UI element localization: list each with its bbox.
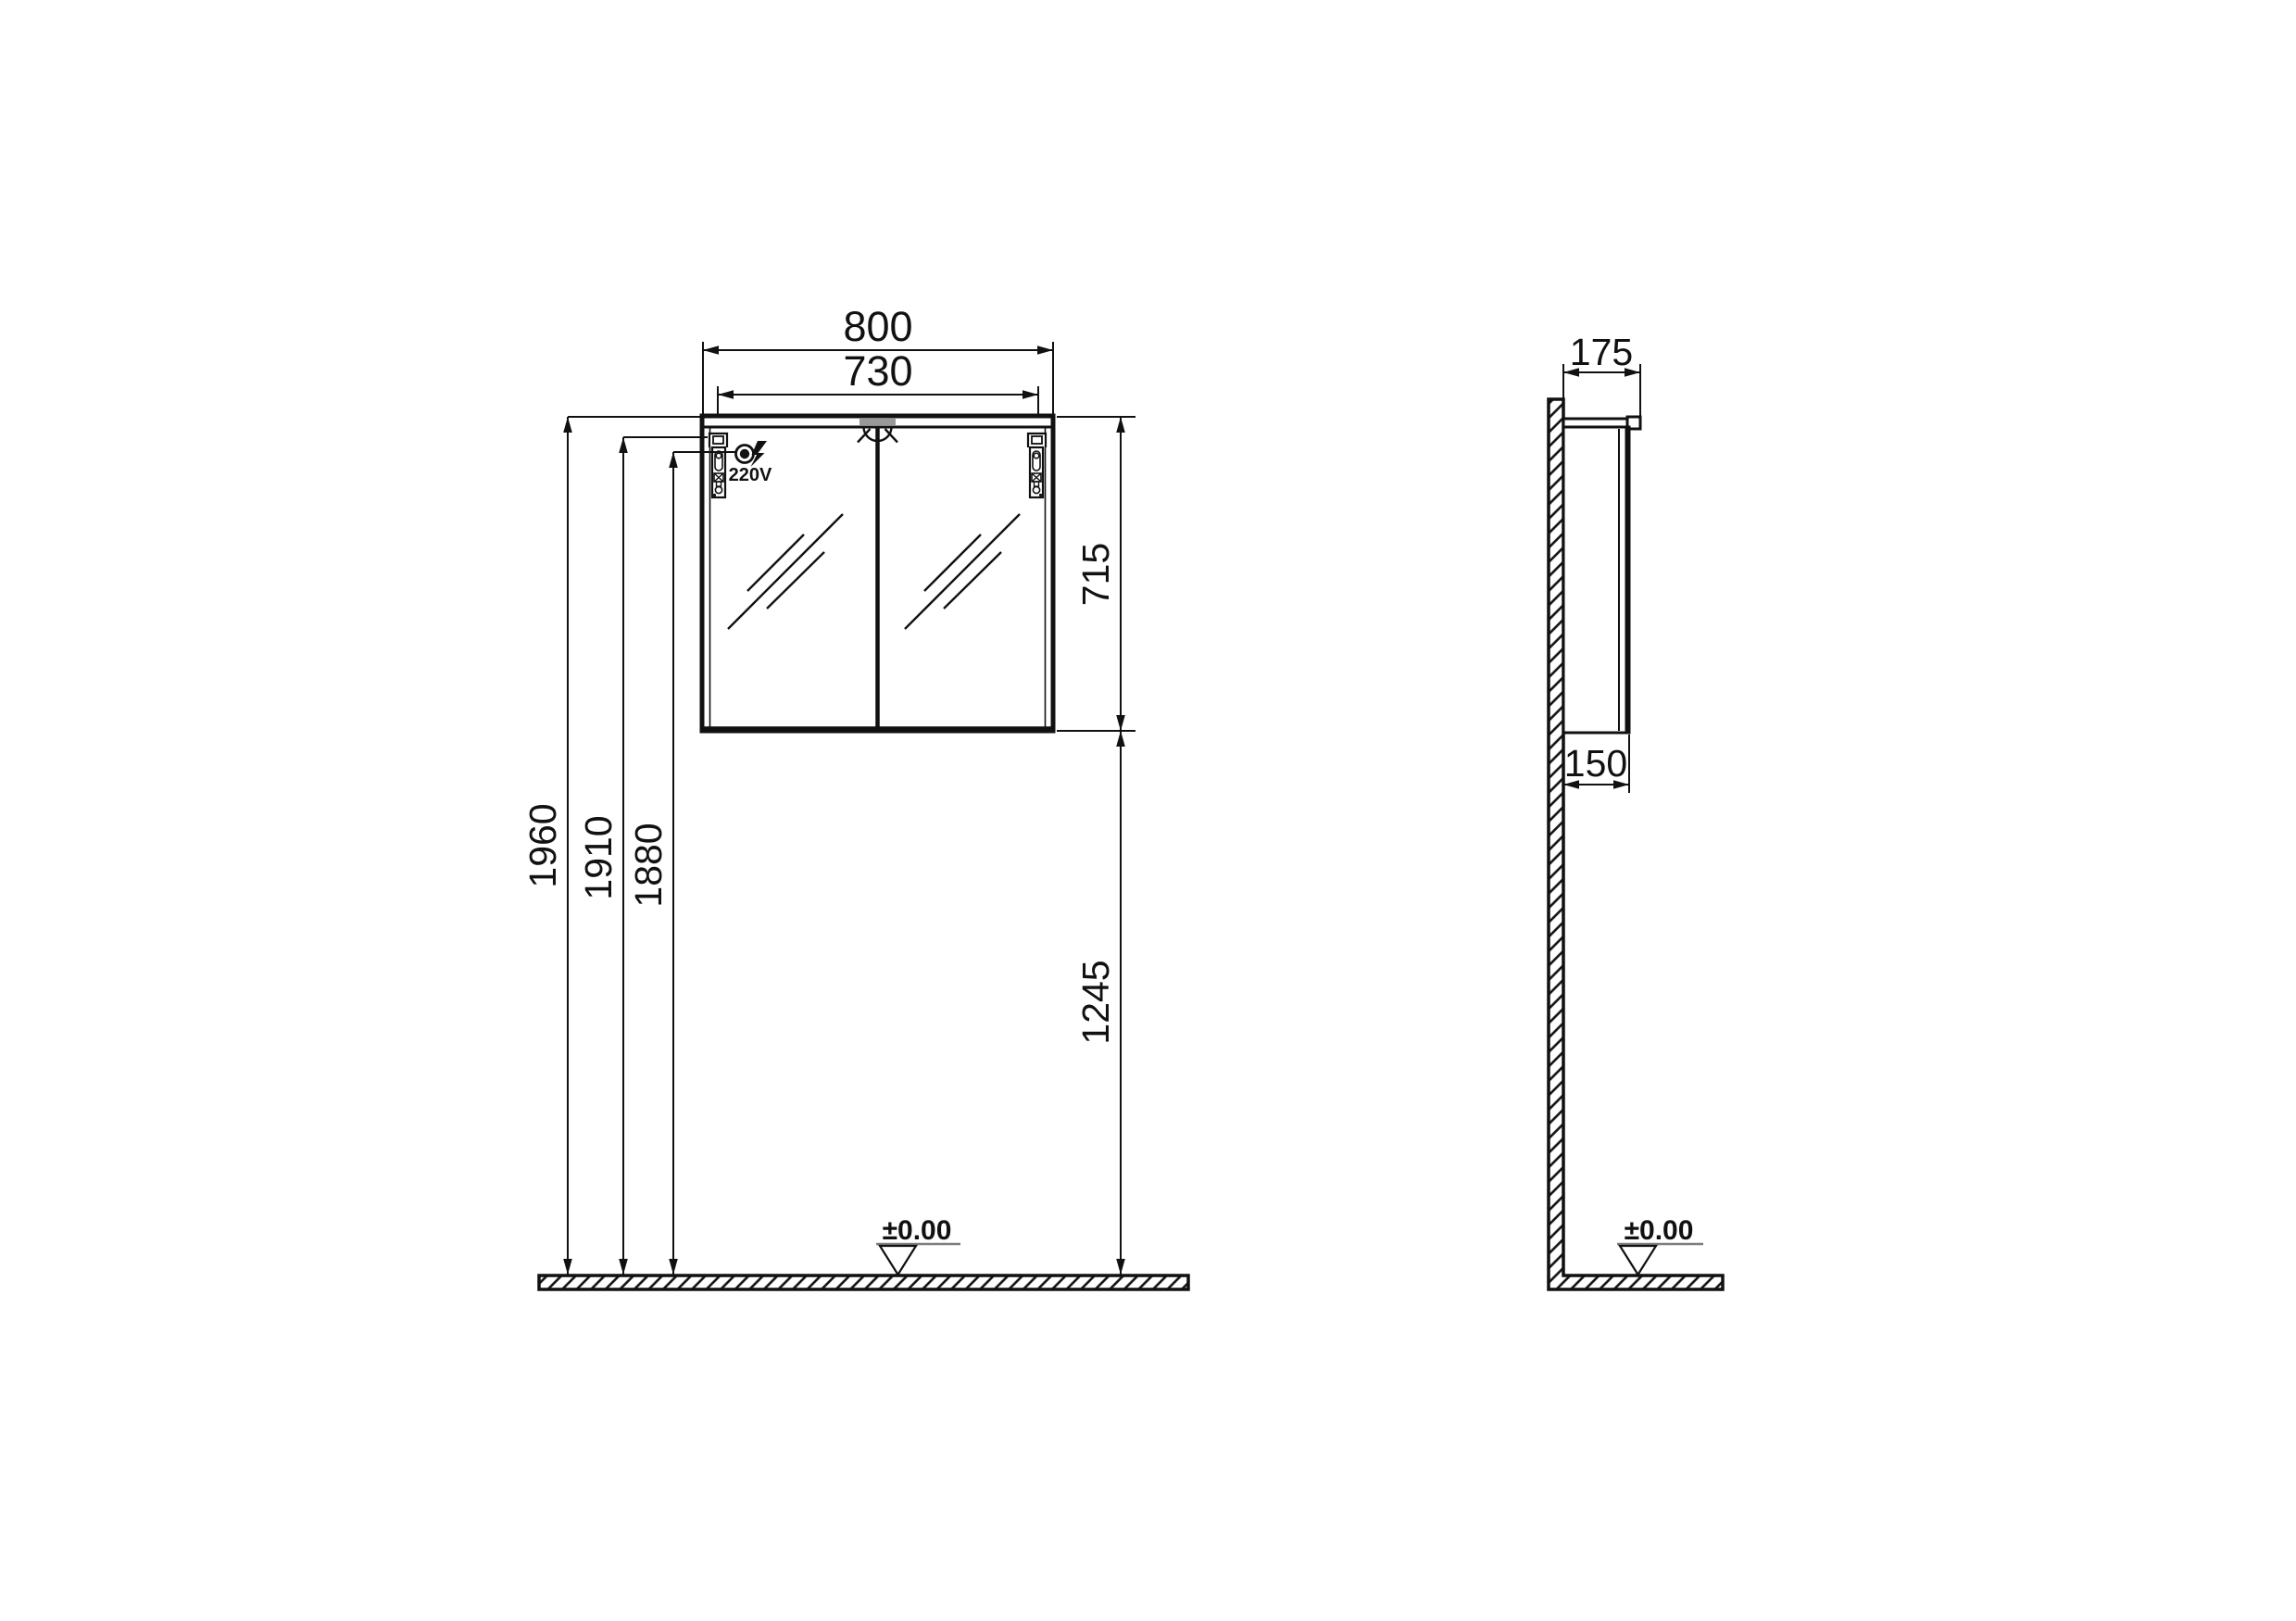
datum-front: ±0.00: [876, 1215, 960, 1275]
dim-top-height-label: 1960: [521, 803, 564, 887]
floor-front: [539, 1275, 1188, 1289]
cabinet-side: [1563, 417, 1640, 733]
front-view: 800 730: [521, 303, 1188, 1289]
hinge-bracket-left: [709, 434, 727, 497]
datum-side-triangle-icon: [1620, 1246, 1656, 1275]
datum-side-label: ±0.00: [1625, 1215, 1694, 1246]
datum-side: ±0.00: [1617, 1215, 1703, 1275]
dim-hinge-spacing-label: 730: [843, 347, 912, 395]
datum-front-label: ±0.00: [883, 1215, 952, 1246]
datum-front-triangle-icon: [880, 1246, 916, 1275]
dim-cabinet-height-label: 715: [1074, 543, 1117, 606]
dim-body-depth-label: 150: [1564, 742, 1627, 785]
dim-top-depth: 175: [1563, 331, 1640, 416]
dim-outer-width-label: 800: [843, 303, 912, 350]
side-view: 175 150 ±0.00: [1549, 331, 1723, 1289]
cabinet-front: 220V: [702, 416, 1053, 731]
dim-bottom-to-floor-label: 1245: [1074, 960, 1117, 1044]
dim-bottom-to-floor: 1245: [1074, 731, 1121, 1275]
drawing-sheet: 800 730: [0, 0, 2296, 1621]
hinge-bracket-right: [1028, 434, 1046, 497]
dim-cabinet-height: 715: [1057, 417, 1135, 731]
light-strip: [859, 419, 896, 425]
socket-voltage-label: 220V: [729, 465, 772, 485]
dim-socket-height-label: 1880: [627, 823, 670, 907]
technical-drawing-mirror-cabinet: 800 730: [0, 0, 2296, 1621]
socket-icon-dot: [740, 449, 749, 459]
dim-top-depth-label: 175: [1570, 331, 1633, 373]
dim-body-depth: 150: [1563, 735, 1629, 793]
dim-hinge-height-label: 1910: [577, 815, 620, 899]
